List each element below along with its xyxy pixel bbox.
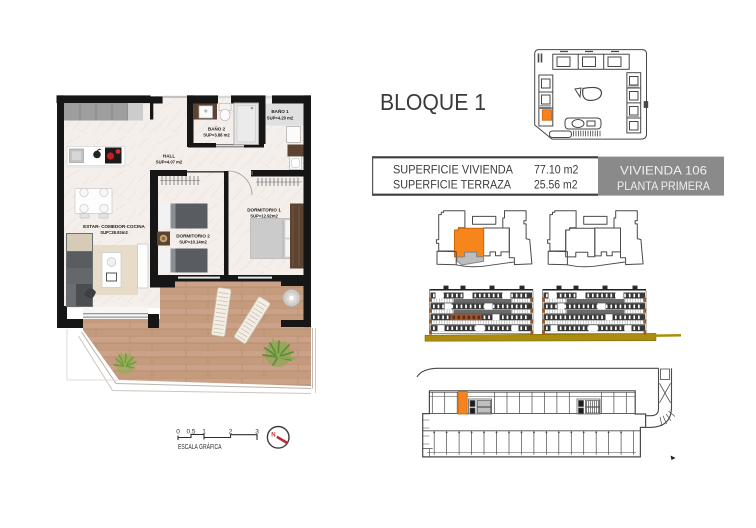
svg-text:SUP=4.20 m2: SUP=4.20 m2 [267, 115, 294, 120]
svg-text:PLANTA PRIMERA: PLANTA PRIMERA [617, 179, 710, 193]
svg-text:SUPERFICIE VIVIENDA: SUPERFICIE VIVIENDA [393, 163, 513, 176]
svg-text:BAÑO 2: BAÑO 2 [208, 126, 226, 132]
svg-text:SUP=10.14m2: SUP=10.14m2 [179, 239, 207, 244]
svg-text:25.56 m2: 25.56 m2 [534, 179, 578, 192]
svg-text:N: N [271, 433, 275, 439]
svg-text:HALL: HALL [163, 154, 175, 159]
svg-text:SUP=3.88 m2: SUP=3.88 m2 [203, 133, 230, 138]
svg-text:0: 0 [176, 429, 180, 436]
svg-text:SUP=4.07 m2: SUP=4.07 m2 [156, 159, 183, 164]
svg-text:BAÑO 1: BAÑO 1 [271, 108, 289, 114]
svg-text:ESTAR- COMEDOR-COCINA: ESTAR- COMEDOR-COCINA [83, 224, 145, 229]
svg-text:SUP=38.93m2: SUP=38.93m2 [100, 230, 128, 235]
svg-text:VIVIENDA 106: VIVIENDA 106 [620, 164, 707, 178]
svg-text:SUPERFICIE TERRAZA: SUPERFICIE TERRAZA [393, 179, 511, 192]
svg-text:DORMITORIO 2: DORMITORIO 2 [176, 234, 210, 239]
svg-text:DORMITORIO 1: DORMITORIO 1 [247, 208, 281, 213]
svg-text:77.10 m2: 77.10 m2 [534, 163, 579, 176]
svg-text:BLOQUE 1: BLOQUE 1 [380, 89, 486, 115]
svg-text:ESCALA GRÁFICA: ESCALA GRÁFICA [178, 442, 222, 451]
svg-text:SUP=12.92m2: SUP=12.92m2 [250, 214, 278, 219]
